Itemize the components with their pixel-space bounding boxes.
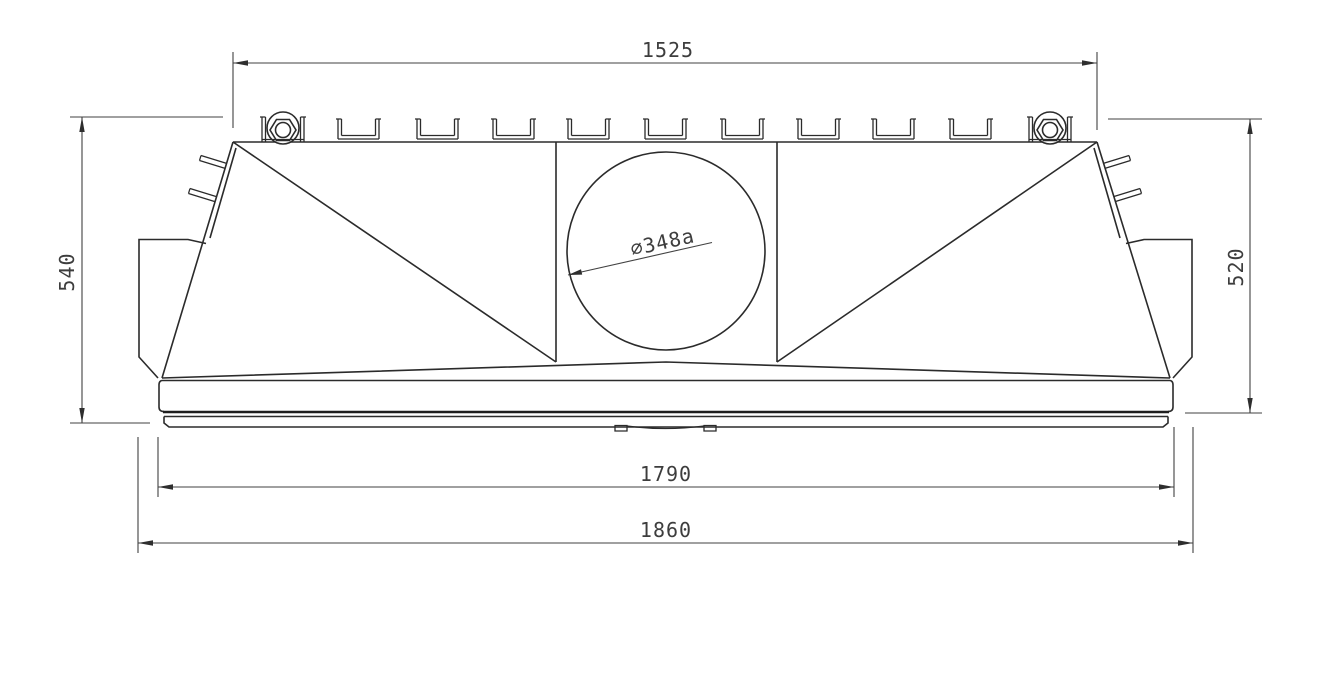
dimension-right-height: 520 bbox=[1108, 119, 1262, 413]
dimension-label-bore: ⌀348a bbox=[628, 223, 697, 261]
clamp-channel bbox=[491, 119, 536, 139]
body-outline bbox=[162, 142, 1170, 378]
drawing-canvas: 1525 540 520 1790 1860 ⌀348a bbox=[0, 0, 1328, 683]
dimension-overall-width: 1860 bbox=[138, 427, 1193, 553]
dimension-label-overall-width: 1860 bbox=[640, 518, 692, 542]
dimension-label-right-height: 520 bbox=[1224, 247, 1248, 286]
clamp-channel bbox=[415, 119, 460, 139]
bolt-assembly-right bbox=[1027, 112, 1073, 144]
bottom-strip bbox=[164, 417, 1168, 428]
body bbox=[139, 112, 1192, 431]
dim-lines-1525 bbox=[233, 52, 1097, 130]
clamp-channel bbox=[643, 119, 688, 139]
arrowhead-bore bbox=[568, 269, 582, 275]
clamp-channel bbox=[871, 119, 916, 139]
dimension-bore-diameter: ⌀348a bbox=[568, 223, 712, 275]
bolt-assembly-left bbox=[260, 112, 306, 144]
edge-pins bbox=[189, 156, 1142, 202]
clamp-channel bbox=[336, 119, 381, 139]
dimension-label-base-width: 1790 bbox=[640, 462, 692, 486]
dimension-top-width: 1525 bbox=[233, 38, 1097, 130]
clamp-channel bbox=[566, 119, 611, 139]
clamp-channel bbox=[948, 119, 993, 139]
clamp-channel bbox=[720, 119, 765, 139]
technical-drawing: 1525 540 520 1790 1860 ⌀348a bbox=[0, 0, 1328, 683]
dimension-base-width: 1790 bbox=[158, 427, 1174, 497]
base-plate bbox=[159, 381, 1173, 412]
dimension-label-top-width: 1525 bbox=[642, 38, 694, 62]
dimension-label-left-height: 540 bbox=[55, 252, 79, 291]
side-tabs bbox=[139, 240, 1192, 379]
clamp-channels bbox=[336, 119, 993, 139]
clamp-channel bbox=[796, 119, 841, 139]
